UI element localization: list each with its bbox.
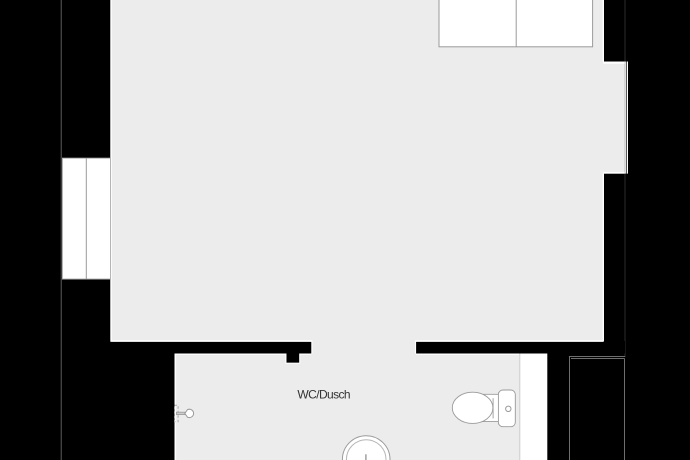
svg-text:WC/Dusch: WC/Dusch [297,388,350,402]
